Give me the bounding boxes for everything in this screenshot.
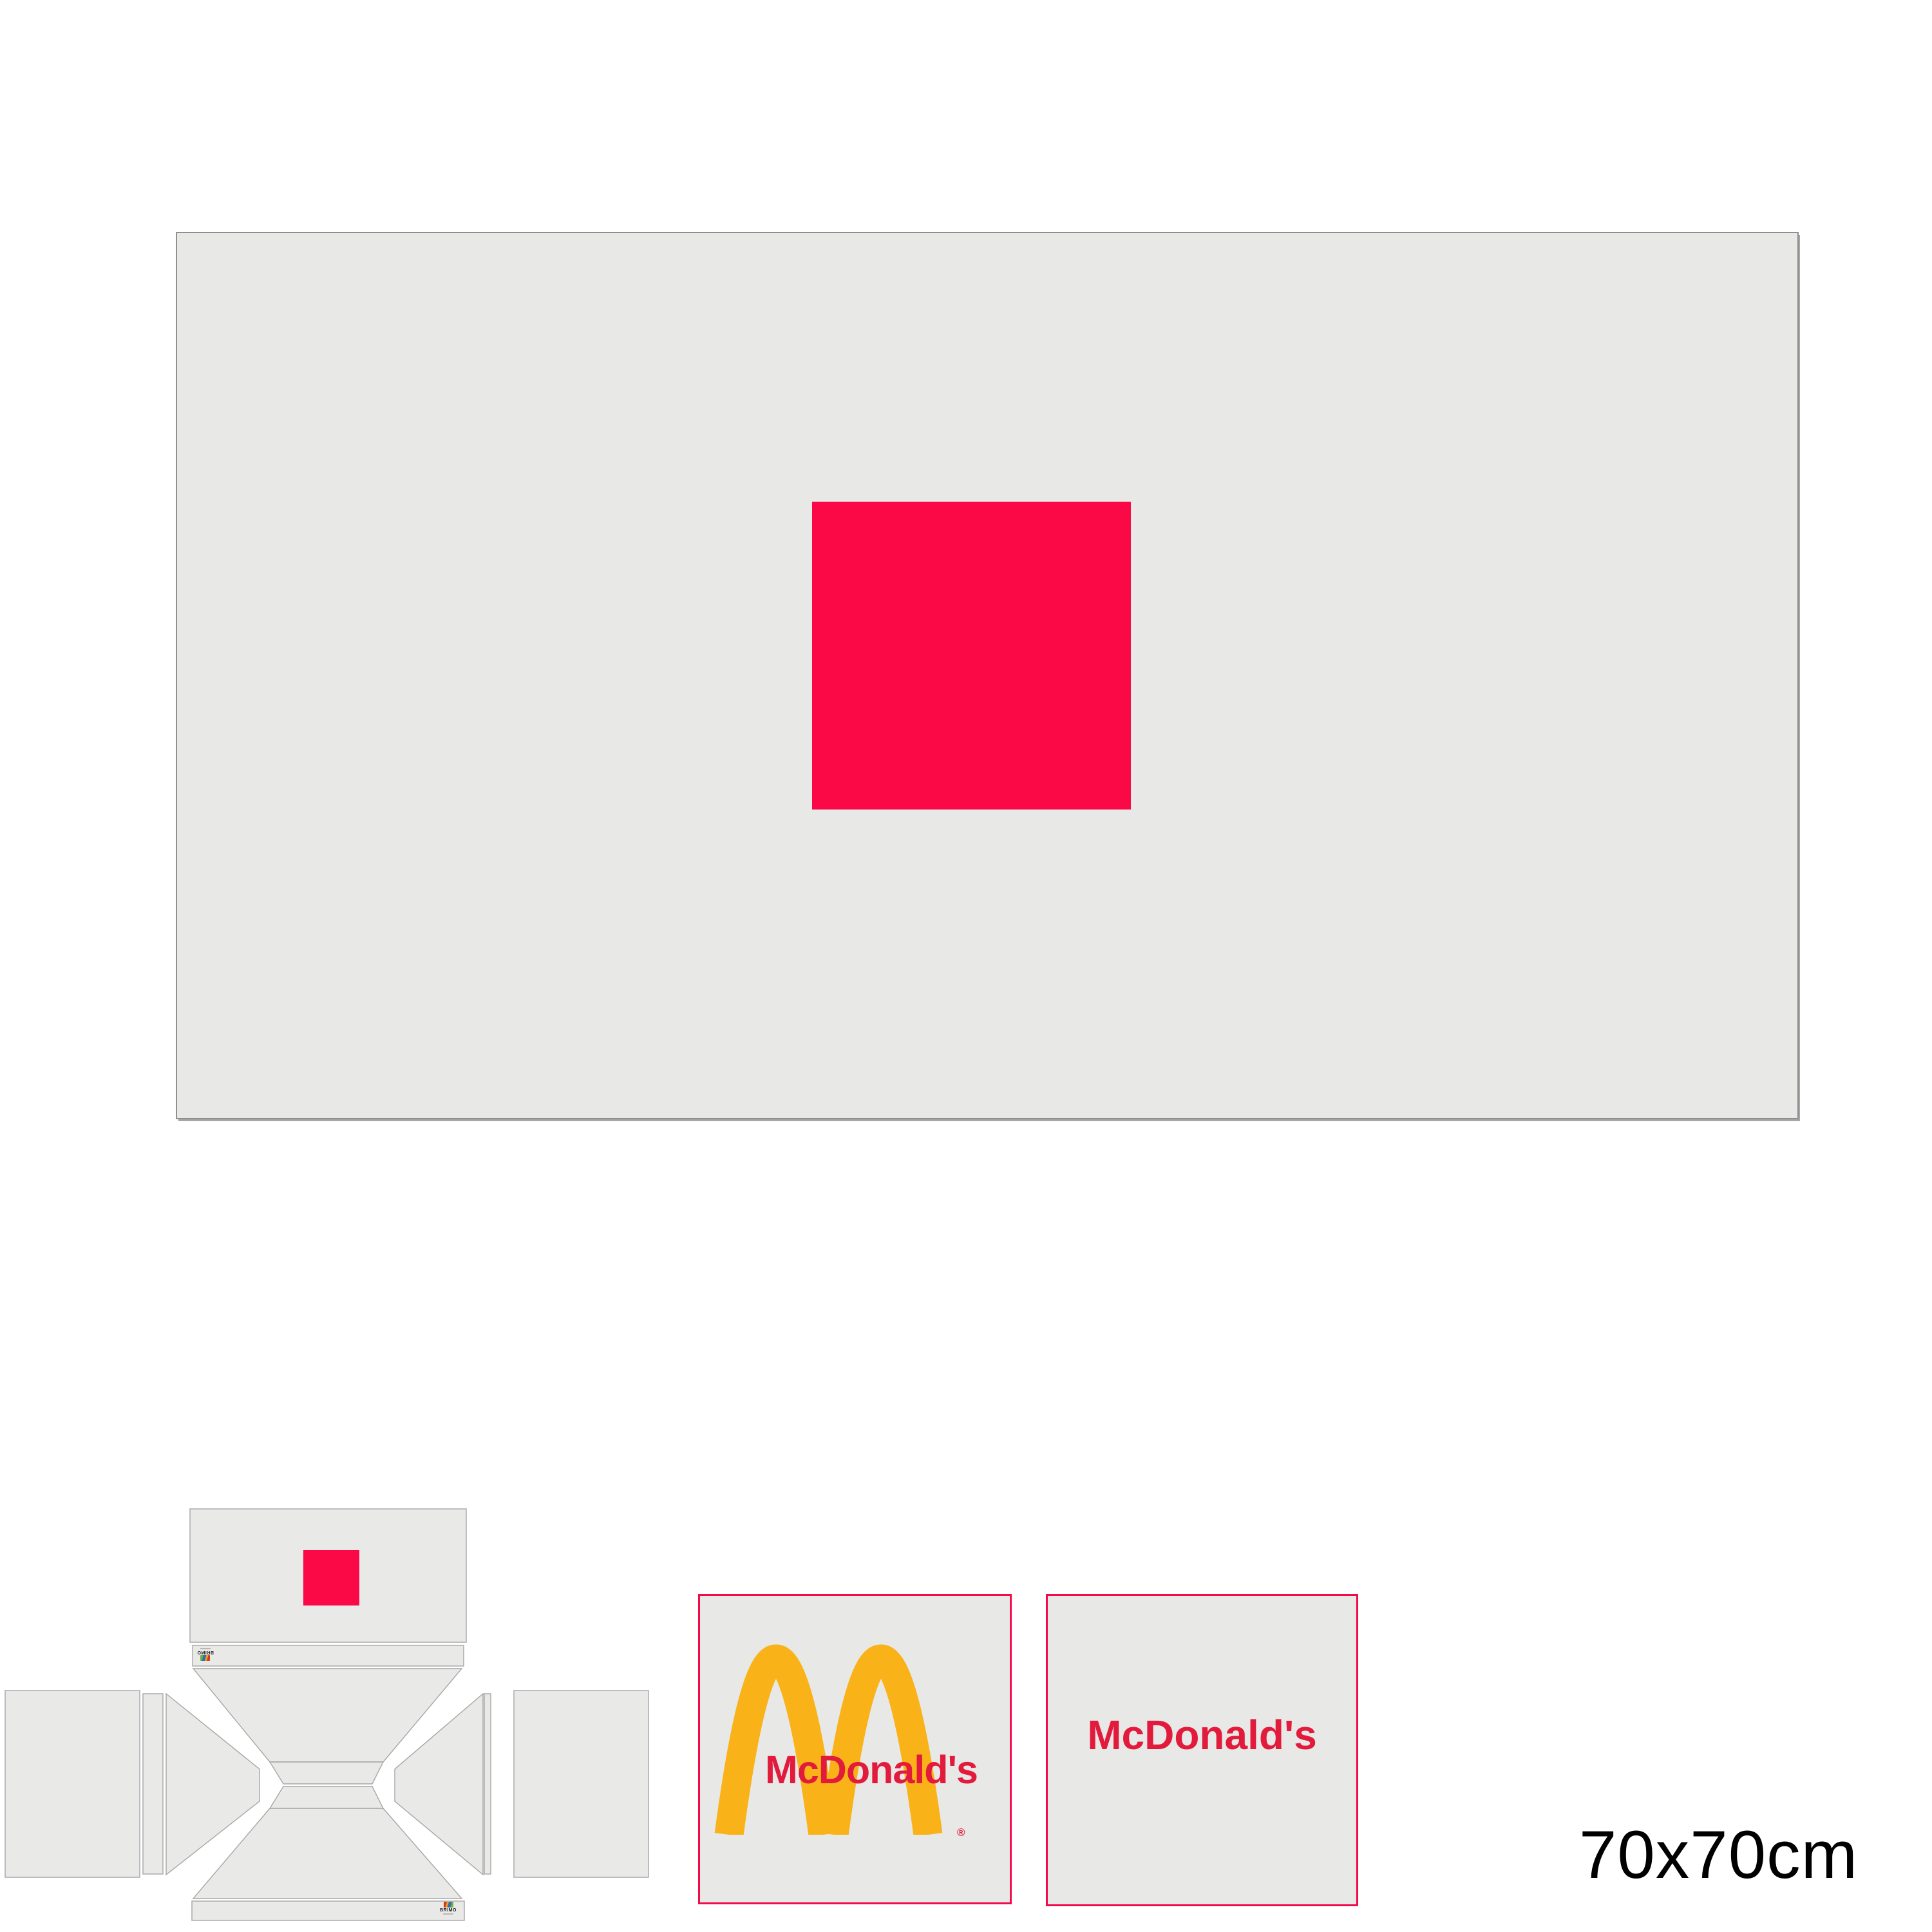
brimo-print-mark-top: BRIMO: [197, 1648, 214, 1661]
brimo-label: BRIMO: [197, 1650, 214, 1654]
golden-arches-icon: [711, 1641, 946, 1835]
brimo-subtext-bar: [200, 1648, 211, 1649]
registered-trademark-symbol: ®: [957, 1826, 965, 1839]
brimo-label: BRIMO: [440, 1908, 457, 1913]
dieline-top-strip: [193, 1645, 464, 1666]
dieline-right-flap: [514, 1690, 649, 1877]
brimo-subtext-bar: [443, 1913, 453, 1915]
dieline-mini-pink-square: [303, 1550, 359, 1605]
logo-swatch-arches: McDonald's ®: [698, 1594, 1012, 1904]
dieline-center-band-top: [270, 1762, 383, 1784]
dieline-left-flap: [5, 1690, 140, 1877]
box-dieline-template: [0, 1501, 657, 1932]
dieline-bottom-strip: [192, 1901, 464, 1920]
print-proof-artboard: BRIMO BRIMO McDonald's ® McDonald's 70x7…: [0, 0, 1932, 1932]
dieline-right-strip: [484, 1694, 491, 1874]
size-label: 70x70cm: [1579, 1817, 1858, 1893]
pink-print-area: [812, 502, 1131, 810]
front-panel-preview: [176, 232, 1799, 1119]
logo-swatch-wordmark: McDonald's: [1046, 1594, 1358, 1906]
mcdonalds-wordmark: McDonald's: [1048, 1714, 1356, 1756]
brimo-print-mark-bottom: BRIMO: [440, 1902, 457, 1915]
dieline-center-band-bottom: [270, 1786, 383, 1808]
dieline-left-strip: [143, 1694, 163, 1874]
brimo-logo-icon: [444, 1902, 453, 1908]
mcdonalds-wordmark: McDonald's: [736, 1750, 1007, 1790]
brimo-logo-icon: [201, 1655, 211, 1661]
